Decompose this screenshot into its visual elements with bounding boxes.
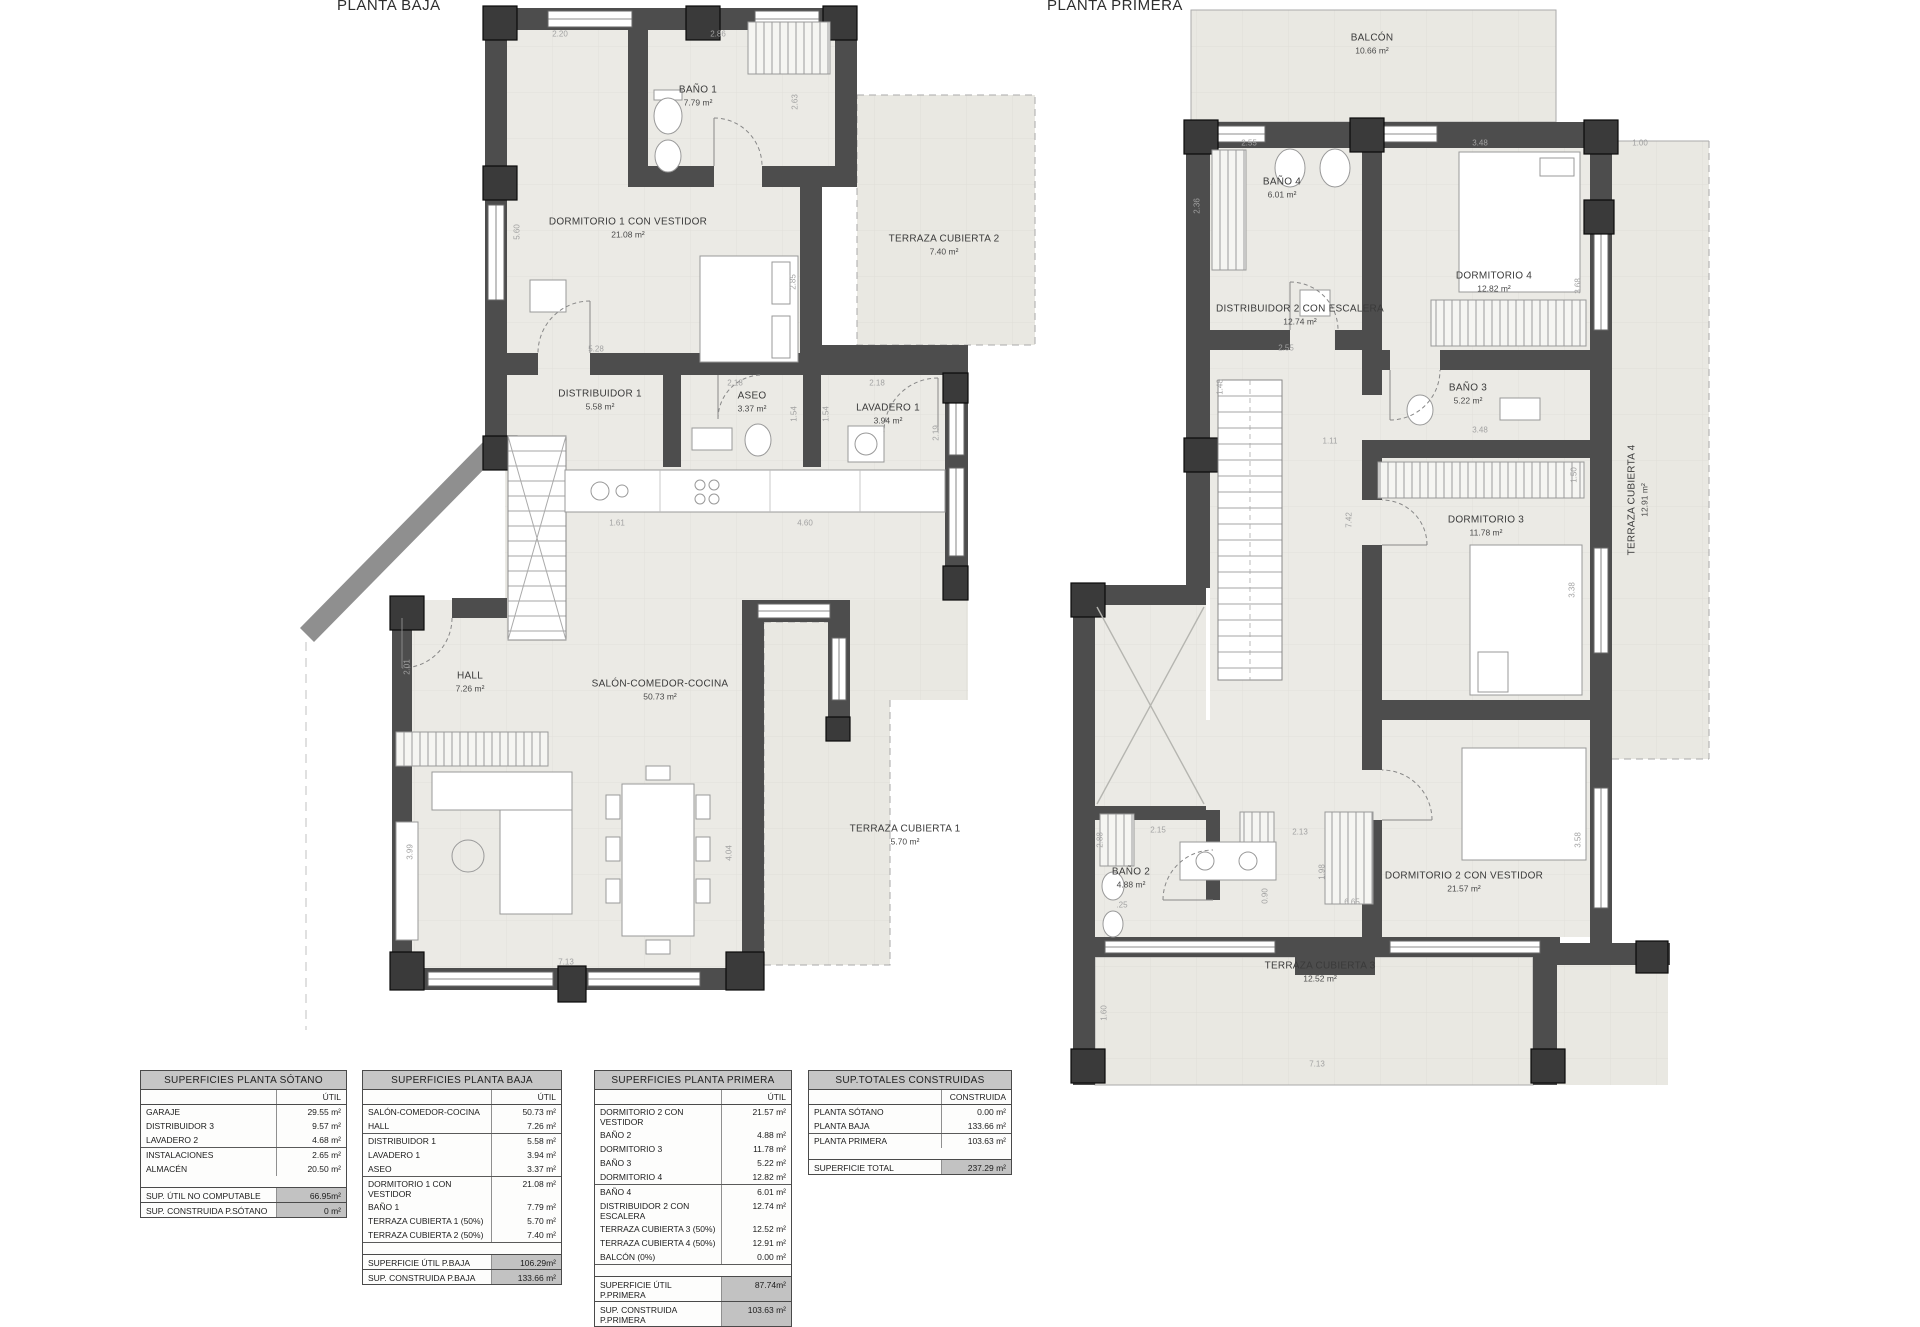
table-superficies-sotano: SUPERFICIES PLANTA SÓTANOÚTILGARAJE29.55… [140,1070,347,1218]
table-row: TERRAZA CUBIERTA 1 (50%)5.70 m² [363,1214,561,1228]
table-row: PLANTA BAJA133.66 m² [809,1119,1011,1134]
table-row: BAÑO 17.79 m² [363,1200,561,1214]
table-superficies-primera: SUPERFICIES PLANTA PRIMERAÚTILDORMITORIO… [594,1070,792,1327]
table-title: SUP.TOTALES CONSTRUIDAS [809,1071,1011,1090]
stairs-icon [508,436,566,640]
table-row: DORMITORIO 2 CON VESTIDOR21.57 m² [595,1105,791,1128]
table-row: DORMITORIO 311.78 m² [595,1142,791,1156]
plan-baja [300,6,1035,1030]
plan-title-baja: PLANTA BAJA [337,0,441,14]
plan-title-primera: PLANTA PRIMERA [1047,0,1183,14]
table-total-row: SUP. ÚTIL NO COMPUTABLE66.95m² [141,1187,346,1202]
wardrobe-icon [1378,462,1584,498]
table-row: DISTRIBUIDOR 39.57 m² [141,1119,346,1133]
table-row: HALL7.26 m² [363,1119,561,1134]
table-row: PLANTA SÓTANO0.00 m² [809,1105,1011,1119]
table-row: GARAJE29.55 m² [141,1105,346,1119]
table-col-header: ÚTIL [363,1090,561,1105]
table-row: DISTRIBUIDOR 2 CON ESCALERA12.74 m² [595,1199,791,1222]
kitchen-counter-icon [565,470,945,512]
table-totales-construidas: SUP.TOTALES CONSTRUIDASCONSTRUIDAPLANTA … [808,1070,1012,1175]
table-row: DORMITORIO 412.82 m² [595,1170,791,1185]
table-col-header: ÚTIL [141,1090,346,1105]
table-title: SUPERFICIES PLANTA BAJA [363,1071,561,1090]
bed-icon [1462,748,1586,860]
table-row: DISTRIBUIDOR 15.58 m² [363,1134,561,1148]
table-row: LAVADERO 24.68 m² [141,1133,346,1148]
table-col-header: CONSTRUIDA [809,1090,1011,1105]
table-total-row: SUP. CONSTRUIDA P.SÓTANO0 m² [141,1202,346,1217]
table-row: BAÑO 46.01 m² [595,1185,791,1199]
table-col-header: ÚTIL [595,1090,791,1105]
table-row: BAÑO 24.88 m² [595,1128,791,1142]
plan-primera [1071,10,1709,1085]
table-superficies-baja: SUPERFICIES PLANTA BAJAÚTILSALÓN-COMEDOR… [362,1070,562,1285]
table-total-row: SUPERFICIE ÚTIL P.BAJA106.29m² [363,1254,561,1269]
table-row: PLANTA PRIMERA103.63 m² [809,1134,1011,1148]
table-row: LAVADERO 13.94 m² [363,1148,561,1162]
table-row: BAÑO 35.22 m² [595,1156,791,1170]
table-row: TERRAZA CUBIERTA 3 (50%)12.52 m² [595,1222,791,1236]
table-total-row: SUPERFICIE TOTAL237.29 m² [809,1159,1011,1174]
wardrobe-icon [1325,812,1373,904]
table-row: BALCÓN (0%)0.00 m² [595,1250,791,1265]
table-title: SUPERFICIES PLANTA PRIMERA [595,1071,791,1090]
table-total-row: SUP. CONSTRUIDA P.PRIMERA103.63 m² [595,1301,791,1326]
table-row: TERRAZA CUBIERTA 4 (50%)12.91 m² [595,1236,791,1250]
table-row: ALMACÉN20.50 m² [141,1162,346,1176]
table-row: TERRAZA CUBIERTA 2 (50%)7.40 m² [363,1228,561,1243]
stairs-icon [1218,380,1282,680]
table-row: ASEO3.37 m² [363,1162,561,1177]
floorplan-page: { "plans": [ { "id": "baja", "title": "P… [0,0,1920,1280]
table-row: SALÓN-COMEDOR-COCINA50.73 m² [363,1105,561,1119]
table-title: SUPERFICIES PLANTA SÓTANO [141,1071,346,1090]
table-row: INSTALACIONES2.65 m² [141,1148,346,1162]
wardrobe-icon [1431,300,1586,346]
table-row: DORMITORIO 1 CON VESTIDOR21.08 m² [363,1177,561,1200]
table-total-row: SUP. CONSTRUIDA P.BAJA133.66 m² [363,1269,561,1284]
